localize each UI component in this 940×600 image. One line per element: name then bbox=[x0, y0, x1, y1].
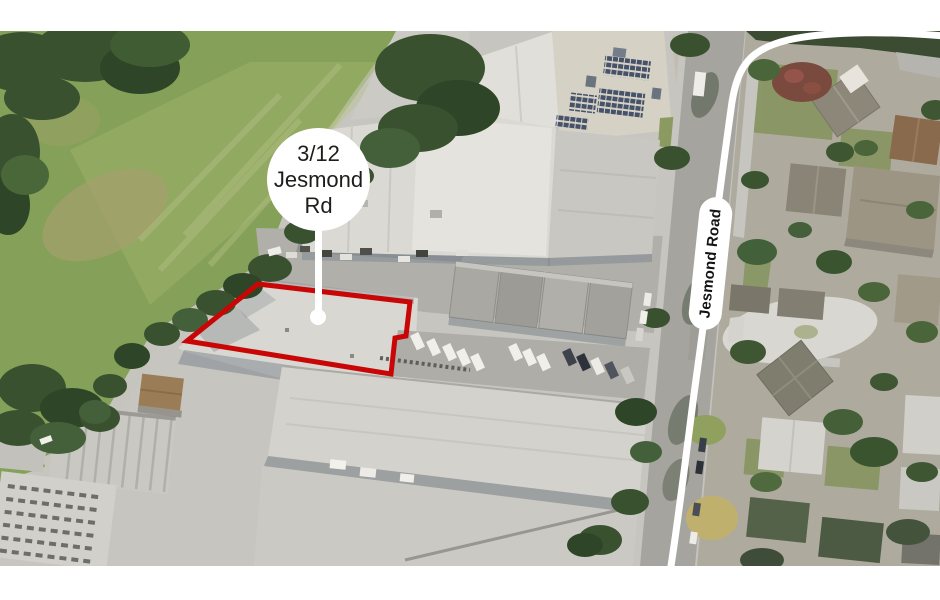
callout-line-2: Jesmond bbox=[274, 167, 363, 193]
letterbox-top bbox=[0, 0, 940, 31]
callout-line-3: Rd bbox=[304, 193, 332, 219]
property-callout[interactable]: 3/12 Jesmond Rd bbox=[267, 128, 370, 231]
map-viewport: Jesmond Road 3/12 Jesmond Rd bbox=[0, 0, 940, 600]
aerial-map bbox=[0, 0, 940, 600]
callout-stem bbox=[315, 226, 322, 316]
letterbox-bottom bbox=[0, 566, 940, 600]
callout-line-1: 3/12 bbox=[297, 141, 340, 167]
road-label-text: Jesmond Road bbox=[696, 208, 724, 319]
callout-anchor-dot bbox=[310, 309, 326, 325]
